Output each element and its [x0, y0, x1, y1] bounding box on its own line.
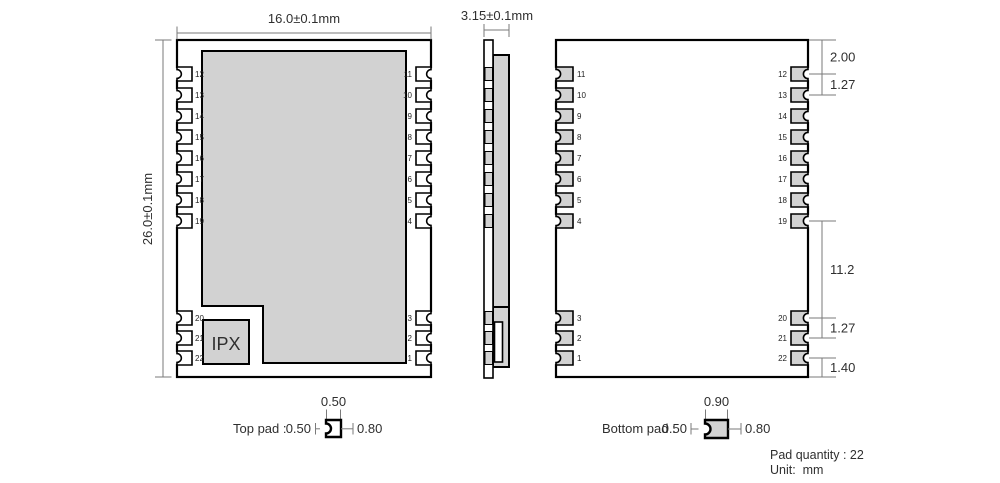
- pad-15-bottom-view-label: 15: [778, 133, 787, 142]
- side-view-pad-row-4: [485, 131, 493, 144]
- side-view-pad-row-9: [485, 312, 493, 325]
- pad-5-top-view-label: 5: [408, 196, 413, 205]
- pad-18-bottom-view-label: 18: [778, 196, 787, 205]
- pad-quantity-note: Pad quantity : 22: [770, 448, 864, 462]
- pad-18-top-view-label: 18: [195, 196, 204, 205]
- pad-12-top-view-label: 12: [195, 70, 204, 79]
- pad-14-top-view-label: 14: [195, 112, 204, 121]
- pad-11-top-view-label: 11: [404, 70, 413, 79]
- bottom-pad-width-dim: 0.90: [704, 394, 729, 409]
- side-view-pads: [485, 68, 493, 365]
- pad-13-top-view-label: 13: [195, 91, 204, 100]
- pad-10-top-view-label: 10: [403, 91, 412, 100]
- pad-2-top-view-label: 2: [408, 334, 413, 343]
- bottom-pad-length-dim: 0.80: [745, 421, 770, 436]
- top-pad-width-dim: 0.50: [321, 394, 346, 409]
- pad-5-bottom-view-label: 5: [577, 196, 582, 205]
- pad-22-top-view-label: 22: [195, 354, 204, 363]
- thickness-dim-label: 3.15±0.1mm: [461, 8, 533, 23]
- pad-14-bottom-view-label: 14: [778, 112, 787, 121]
- pad-3-top-view-label: 3: [408, 314, 413, 323]
- height-dim-label: 26.0±0.1mm: [140, 173, 155, 245]
- pad-pitch-dimensions: 2.001.2711.21.271.40: [809, 40, 855, 377]
- pad-4-top-view-label: 4: [408, 217, 413, 226]
- pad-19-top-view-label: 19: [195, 217, 204, 226]
- side-view-pad-row-6: [485, 173, 493, 186]
- top-pad-notch-dim: 0.50: [286, 421, 311, 436]
- pad-20-bottom-view-label: 20: [778, 314, 787, 323]
- pad-13-bottom-view-label: 13: [778, 91, 787, 100]
- pad-7-top-view-label: 7: [408, 154, 413, 163]
- pad-9-bottom-view-label: 9: [577, 112, 582, 121]
- pad-1-bottom-view-label: 1: [577, 354, 582, 363]
- pad-16-bottom-view-label: 16: [778, 154, 787, 163]
- pad-1-top-view-label: 1: [408, 354, 413, 363]
- pad-19-bottom-view-label: 19: [778, 217, 787, 226]
- top-pad-label: Top pad :: [233, 421, 287, 436]
- side-view-shield-slab: [493, 55, 509, 307]
- pad-2-bottom-view-label: 2: [577, 334, 582, 343]
- top-pad-length-dim: 0.80: [357, 421, 382, 436]
- pad-8-top-view-label: 8: [408, 133, 413, 142]
- pitch-dim-label-2: 11.2: [830, 262, 854, 277]
- pad-20-top-view-label: 20: [195, 314, 204, 323]
- pad-17-top-view-label: 17: [195, 175, 204, 184]
- pad-11-bottom-view-label: 11: [577, 70, 586, 79]
- side-view-pad-row-11: [485, 352, 493, 365]
- side-view-pad-row-7: [485, 194, 493, 207]
- drawing-svg: IPX 16.0±0.1mm 26.0±0.1mm 3.15±0.1mm 121…: [0, 0, 1000, 483]
- side-view-pad-row-5: [485, 152, 493, 165]
- pitch-dim-label-0: 2.00: [830, 50, 855, 65]
- pad-6-top-view-label: 6: [408, 175, 413, 184]
- ipx-label: IPX: [211, 334, 240, 354]
- side-view-pad-row-2: [485, 89, 493, 102]
- pad-21-top-view-label: 21: [195, 334, 204, 343]
- pad-10-bottom-view-label: 10: [577, 91, 586, 100]
- pad-12-bottom-view-label: 12: [778, 70, 787, 79]
- side-view-pad-row-3: [485, 110, 493, 123]
- pad-4-bottom-view-label: 4: [577, 217, 582, 226]
- side-view-pad-row-1: [485, 68, 493, 81]
- pad-6-bottom-view-label: 6: [577, 175, 582, 184]
- module-dimension-drawing: IPX 16.0±0.1mm 26.0±0.1mm 3.15±0.1mm 121…: [0, 0, 1000, 483]
- pad-9-top-view-label: 9: [408, 112, 413, 121]
- pad-21-bottom-view-label: 21: [778, 334, 787, 343]
- bottom-pad-notch-dim: 0.50: [662, 421, 687, 436]
- width-dim-label: 16.0±0.1mm: [268, 11, 340, 26]
- pad-16-top-view-label: 16: [195, 154, 204, 163]
- pad-3-bottom-view-label: 3: [577, 314, 582, 323]
- top-view-shield-can: [202, 51, 406, 363]
- pitch-dim-label-1: 1.27: [830, 77, 855, 92]
- bottom-view-module-outline: [556, 40, 808, 377]
- pitch-dim-label-3: 1.27: [830, 321, 855, 336]
- pad-7-bottom-view-label: 7: [577, 154, 582, 163]
- pad-15-top-view-label: 15: [195, 133, 204, 142]
- side-view-pad-row-8: [485, 215, 493, 228]
- side-view-pad-row-10: [485, 332, 493, 345]
- pad-8-bottom-view-label: 8: [577, 133, 582, 142]
- unit-note: Unit: mm: [770, 463, 823, 477]
- side-view-ipx-connector: [495, 322, 503, 362]
- pad-17-bottom-view-label: 17: [778, 175, 787, 184]
- pitch-dim-label-4: 1.40: [830, 360, 855, 375]
- pad-22-bottom-view-label: 22: [778, 354, 787, 363]
